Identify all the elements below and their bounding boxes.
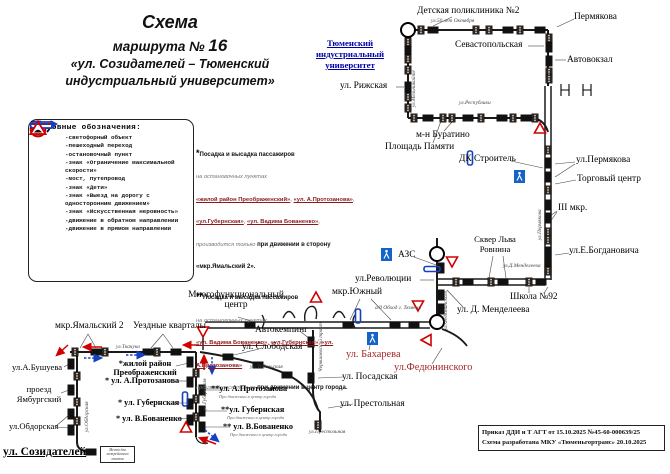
traffic-light-icon [102, 348, 109, 357]
stop-icon [498, 279, 509, 286]
traffic-light-icon [478, 114, 485, 123]
traffic-light-icon [193, 413, 200, 422]
street-name-label: ул.Престольная [309, 429, 345, 435]
stop-icon [428, 27, 439, 34]
traffic-light-icon [449, 114, 456, 123]
legend-items: -светофорный объект-пешеходный переход-о… [35, 134, 189, 232]
stop-icon [545, 172, 552, 183]
stop-label: III мкр. [558, 203, 587, 213]
stop-label: м-н Буратино [416, 130, 470, 140]
roundabout-icon [430, 247, 444, 261]
traffic-light-icon [545, 236, 552, 245]
street-name-label: ул.Ткачука [116, 344, 140, 350]
legend-item-label: -светофорный объект [65, 134, 132, 141]
traffic-light-icon [405, 38, 412, 47]
street-name-label: ул. Тобольская [250, 364, 283, 370]
stop-label: ул.А.Бушуева [12, 362, 62, 372]
legend-item-label: -знак «Выезд на дорогу с односторонним д… [65, 192, 189, 207]
stop-label: Многофункциональный центр [180, 290, 292, 310]
legend-item: -движение в прямом направлении [35, 225, 189, 232]
stop-label: ** ул. В.Бованенко [223, 422, 293, 431]
stop-icon [535, 27, 546, 34]
stop-label: ул.Обдорская [9, 421, 58, 431]
boarding-notes: *Посадка и высадка пассажировна останово… [196, 141, 372, 405]
legend-item: -знак «Дети» [35, 184, 189, 191]
legend-item-label: -остановочный пункт [65, 151, 132, 158]
traffic-light-icon [315, 421, 322, 430]
stop-label: Место для межрейсового отстоя [100, 446, 135, 463]
stop-label: мкр.Ямальский 2 [55, 321, 124, 331]
stop-icon [68, 409, 75, 420]
stop-icon [68, 425, 75, 436]
route-number: 16 [208, 36, 227, 55]
legend-item: -движение в обратном направлении [35, 217, 189, 224]
stop-label: Тюменский индустриальный университет [306, 38, 394, 71]
stop-icon [545, 247, 552, 258]
stop-label: ул.Пермякова [576, 155, 630, 165]
stop-label: ул.Е.Богдановича [569, 246, 639, 256]
stop-label: ДК Строитель [459, 154, 516, 164]
legend-item-label: -знак «Дети» [65, 184, 107, 191]
street-name-label: Червишевский тракт [318, 322, 324, 372]
stop-label: ул. Слободская [242, 342, 302, 352]
stop-label: При движении в центр города [219, 394, 276, 399]
traffic-light-icon [405, 55, 412, 64]
stop-label: ул. Бахарева [346, 349, 401, 360]
stop-icon [409, 322, 420, 329]
traffic-light-icon [532, 114, 539, 123]
title-line-4: индустриальный университет» [30, 73, 310, 90]
stop-label: ул. Д. Менделеева [457, 305, 530, 315]
traffic-light-icon [486, 26, 493, 35]
stop-icon [423, 115, 434, 122]
stop-icon [497, 115, 508, 122]
stop-icon [536, 279, 547, 286]
traffic-light-icon [546, 75, 553, 84]
street-name-label: ул.Пермякова [537, 209, 543, 240]
stop-label: Школа №92 [510, 292, 558, 302]
stop-icon [199, 422, 206, 433]
stop-icon [390, 322, 401, 329]
reverse-direction-arrow [57, 345, 68, 355]
legend-item-label: -мост, путепровод [65, 175, 125, 182]
note-text: Посадка и высадка пассажиров [200, 152, 295, 158]
stop-icon [503, 27, 514, 34]
title-line-2: маршрута № 16 [30, 36, 310, 56]
stop-label: **ул. Губернская [221, 405, 284, 414]
stop-icon [546, 56, 553, 67]
legend-item-label: -знак «Ограничение максимальной скорости… [65, 159, 189, 174]
stop-icon [68, 385, 75, 396]
stop-label: * ул. А.Протозанова [105, 376, 179, 385]
street-name-label: ул.Губернская [202, 378, 208, 410]
route-scheme-page: Схема маршрута № 16 «ул. Созидателей – Т… [0, 0, 670, 474]
traffic-light-icon [517, 26, 524, 35]
stop-icon [545, 200, 552, 211]
bridge-icon [561, 84, 569, 96]
title-line-3: «ул. Созидателей – Тюменский [30, 56, 310, 73]
traffic-light-icon [74, 398, 81, 407]
scheme-title: Схема маршрута № 16 «ул. Созидателей – Т… [30, 12, 310, 90]
stop-label: ул. Рижская [340, 81, 387, 91]
traffic-light-icon [545, 146, 552, 155]
stop-icon [86, 449, 97, 456]
stop-label: ул.Революции [355, 274, 411, 284]
stop-icon [91, 349, 102, 356]
street-name-label: ул.Мельникайте [411, 70, 417, 107]
stop-label: проезд Ямбургский [13, 384, 65, 404]
traffic-light-icon [411, 114, 418, 123]
approval-line-2: Схема разработана МКУ «Тюменьгортранс» 2… [482, 438, 661, 448]
stop-label: При движении в центр города [227, 415, 284, 420]
stop-label: Севастопольская [455, 40, 522, 50]
traffic-light-icon [510, 114, 517, 123]
traffic-light-icon [418, 26, 425, 35]
street-name-label: ул.Республики [459, 100, 491, 106]
oneway-sign-icon [183, 392, 188, 406]
street-name-label: ул.Обдорская [84, 401, 90, 432]
boarding-note-1: *Посадка и высадка пассажировна останово… [196, 141, 372, 275]
stop-label: Автокемпинг [255, 325, 308, 335]
legend-item: -знак «Выезд на дорогу с односторонним д… [35, 192, 189, 207]
legend-item: -знак «Искусственная неровность» [35, 208, 189, 215]
note-text: , [353, 197, 355, 203]
street-name-label: ул.50 лет Октября [431, 18, 474, 24]
stop-label: Сквер Льва Ровнина [466, 234, 524, 254]
legend-item: 40-знак «Ограничение максимальной скорос… [35, 159, 189, 174]
note-text: производится только [196, 242, 257, 248]
stop-label: ул. Созидателей [3, 446, 86, 458]
stop-label: ул. Посадская [342, 372, 398, 382]
traffic-light-icon [453, 278, 460, 287]
legend-item-label: -движение в обратном направлении [65, 217, 178, 224]
approval-box: Приказ ДДИ и Т АГТ от 15.10.2025 №45-60-… [478, 425, 665, 451]
stop-icon [68, 359, 75, 370]
note-text: , [318, 219, 320, 225]
stop-label: Пермякова [574, 12, 617, 22]
legend-item: -остановочный пункт [35, 151, 189, 158]
legend-item: -мост, путепровод [35, 175, 189, 182]
stop-label: При движении в центр города [230, 432, 287, 437]
stop-icon [463, 115, 474, 122]
note-stop-name: «ул. Вадима Бованенко» [247, 219, 318, 225]
note-stop-name: «ул. А.Протозанова» [294, 197, 353, 203]
traffic-light-icon [488, 278, 495, 287]
stop-label: ул. Престольная [340, 399, 405, 409]
stop-icon [187, 377, 194, 388]
roundabout-icon [401, 23, 415, 37]
legend-item-label: -движение в прямом направлении [65, 225, 171, 232]
traffic-light-icon [74, 372, 81, 381]
traffic-light-icon [74, 417, 81, 426]
street-name-label: ул.Федюнинского [443, 291, 449, 330]
traffic-light-icon [545, 228, 552, 237]
stop-label: Детская поликлиника №2 [417, 6, 519, 16]
stop-icon [546, 42, 553, 53]
legend-item-label: -знак «Искусственная неровность» [65, 208, 178, 215]
warning-sign-icon [421, 335, 431, 346]
stop-icon [545, 213, 552, 224]
title-line-1: Схема [30, 12, 310, 33]
traffic-light-icon [545, 186, 552, 195]
approval-line-1: Приказ ДДИ и Т АГТ от 15.10.2025 №45-60-… [482, 428, 661, 438]
stop-icon [463, 279, 474, 286]
legend-box: Условные обозначения: -светофорный объек… [28, 119, 194, 282]
stop-label: мкр.Южный [332, 287, 382, 297]
legend-item: -светофорный объект [35, 134, 189, 141]
stop-label: ул.Федюнинского [394, 362, 472, 373]
legend-item-label: -пешеходный переход [65, 142, 132, 149]
stop-icon [521, 115, 532, 122]
traffic-light-icon [72, 348, 79, 357]
stop-label: * ул. В.Бованенко [116, 414, 182, 423]
street-name-label: ул.Д.Менделеева [503, 263, 541, 269]
roundabout-icon [430, 315, 444, 329]
stop-icon [171, 349, 182, 356]
pedestrian-crossing-sign-icon [381, 248, 392, 261]
traffic-light-icon [546, 34, 553, 43]
note-text: на остановочных пунктах [196, 174, 267, 180]
street-name-label: а/д Обход г. Тюмень [375, 305, 421, 311]
stop-label: Уездные кварталы [133, 321, 206, 331]
stop-icon [545, 158, 552, 169]
traffic-light-icon [440, 114, 447, 123]
forward-direction-arrow [205, 430, 218, 441]
note-stop-name: «жилой район Преображенский» [196, 197, 290, 203]
note-text: на остановочных пунктах [196, 318, 267, 324]
stop-label: Автовокзал [567, 55, 613, 65]
traffic-light-icon [526, 278, 533, 287]
stop-label: *жилой район Преображенский [111, 359, 179, 377]
bridge-icon [583, 84, 591, 96]
warning-sign-icon [447, 257, 458, 267]
legend-item: -пешеходный переход [35, 142, 189, 149]
stop-label: * ул. Губернская [118, 398, 179, 407]
stop-label: **ул. А.Протозанова [211, 384, 287, 393]
stop-label: Площадь Памяти [385, 142, 454, 152]
traffic-light-icon [154, 348, 161, 357]
note-stop-name: «ул.Губернская» [196, 219, 244, 225]
stop-icon [187, 357, 194, 368]
traffic-light-icon [473, 26, 480, 35]
traffic-light-icon [545, 267, 552, 276]
pedestrian-crossing-sign-icon [514, 170, 525, 183]
stop-label: Торговый центр [577, 174, 641, 184]
stop-icon [143, 349, 154, 356]
stop-label: АЗС [398, 250, 416, 260]
legend-title: Условные обозначения: [37, 124, 189, 132]
